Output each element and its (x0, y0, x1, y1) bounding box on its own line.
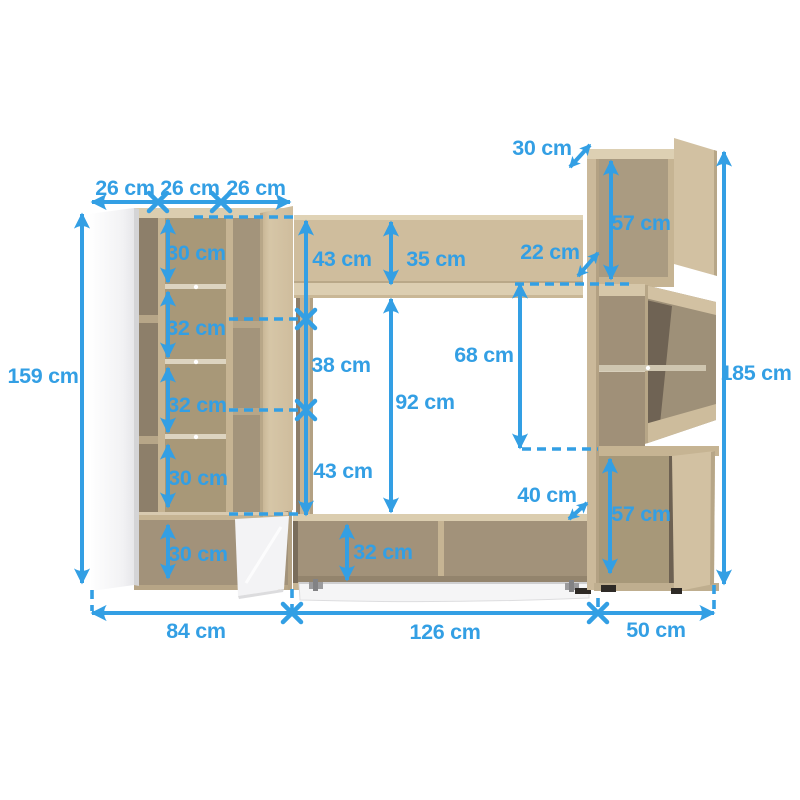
svg-text:57 cm: 57 cm (611, 502, 670, 526)
svg-text:84 cm: 84 cm (166, 619, 225, 643)
svg-text:26 cm: 26 cm (160, 176, 219, 200)
svg-text:30 cm: 30 cm (168, 542, 227, 566)
svg-text:30 cm: 30 cm (512, 136, 571, 160)
svg-text:32 cm: 32 cm (353, 540, 412, 564)
svg-text:26 cm: 26 cm (226, 176, 285, 200)
svg-text:185 cm: 185 cm (720, 361, 791, 385)
svg-text:32 cm: 32 cm (167, 393, 226, 417)
svg-text:32 cm: 32 cm (166, 316, 225, 340)
svg-text:38 cm: 38 cm (311, 353, 370, 377)
svg-text:35 cm: 35 cm (406, 247, 465, 271)
svg-text:30 cm: 30 cm (168, 466, 227, 490)
svg-text:40 cm: 40 cm (517, 483, 576, 507)
svg-text:43 cm: 43 cm (313, 459, 372, 483)
svg-text:68 cm: 68 cm (454, 343, 513, 367)
svg-text:92 cm: 92 cm (395, 390, 454, 414)
svg-text:26 cm: 26 cm (95, 176, 154, 200)
svg-text:50 cm: 50 cm (626, 618, 685, 642)
svg-text:43 cm: 43 cm (312, 247, 371, 271)
svg-text:57 cm: 57 cm (611, 211, 670, 235)
svg-text:159 cm: 159 cm (7, 364, 78, 388)
svg-text:22 cm: 22 cm (520, 240, 579, 264)
svg-text:126 cm: 126 cm (409, 620, 480, 644)
svg-text:30 cm: 30 cm (166, 241, 225, 265)
